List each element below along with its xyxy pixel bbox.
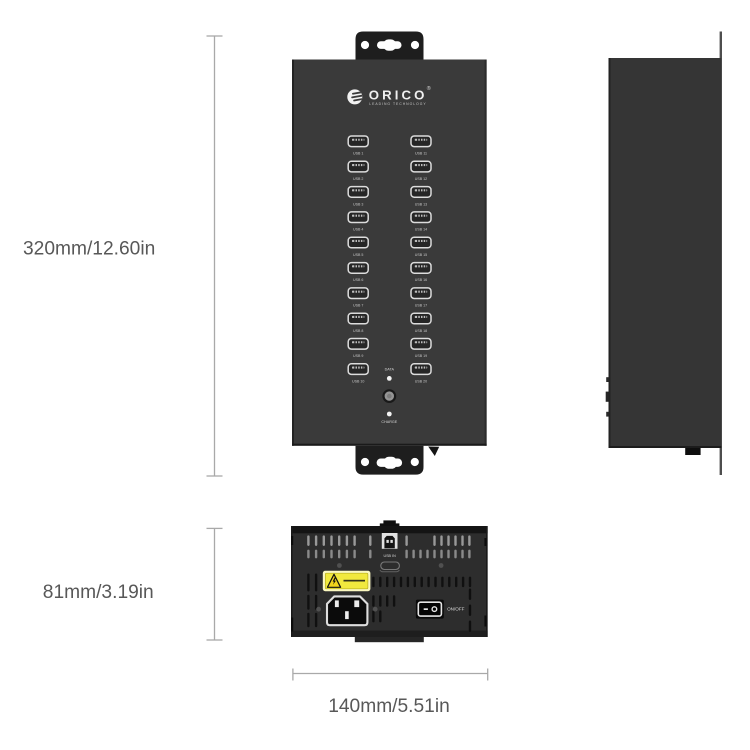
svg-text:CHARGE: CHARGE — [381, 420, 397, 424]
svg-text:USB 5: USB 5 — [353, 253, 363, 257]
svg-text:USB 12: USB 12 — [415, 177, 427, 181]
svg-text:140mm/5.51in: 140mm/5.51in — [328, 696, 450, 717]
svg-text:USB 9: USB 9 — [353, 354, 363, 358]
svg-text:USB 15: USB 15 — [415, 253, 427, 257]
svg-text:USB 11: USB 11 — [415, 152, 427, 156]
svg-text:USB 7: USB 7 — [353, 304, 363, 308]
svg-text:81mm/3.19in: 81mm/3.19in — [43, 582, 154, 603]
svg-text:USB IN: USB IN — [383, 554, 396, 558]
svg-text:LEADING TECHNOLOGY: LEADING TECHNOLOGY — [369, 102, 427, 106]
svg-text:320mm/12.60in: 320mm/12.60in — [23, 238, 155, 259]
svg-text:USB 17: USB 17 — [415, 304, 427, 308]
svg-text:USB 6: USB 6 — [353, 278, 363, 282]
svg-text:USB 18: USB 18 — [415, 329, 427, 333]
svg-text:®: ® — [427, 85, 431, 92]
svg-text:USB 3: USB 3 — [353, 202, 363, 206]
svg-text:DATA: DATA — [385, 368, 395, 372]
svg-text:USB 20: USB 20 — [415, 380, 427, 384]
svg-text:USB 4: USB 4 — [353, 228, 363, 232]
svg-text:USB 2: USB 2 — [353, 177, 363, 181]
svg-text:USB 1: USB 1 — [353, 152, 363, 156]
svg-text:USB 19: USB 19 — [415, 354, 427, 358]
svg-text:ON/OFF: ON/OFF — [447, 607, 465, 612]
svg-text:USB 14: USB 14 — [415, 228, 427, 232]
svg-text:ORICO: ORICO — [369, 87, 428, 102]
svg-text:USB 16: USB 16 — [415, 278, 427, 282]
svg-text:USB 13: USB 13 — [415, 202, 427, 206]
svg-text:USB 8: USB 8 — [353, 329, 363, 333]
svg-text:USB 10: USB 10 — [352, 380, 364, 384]
